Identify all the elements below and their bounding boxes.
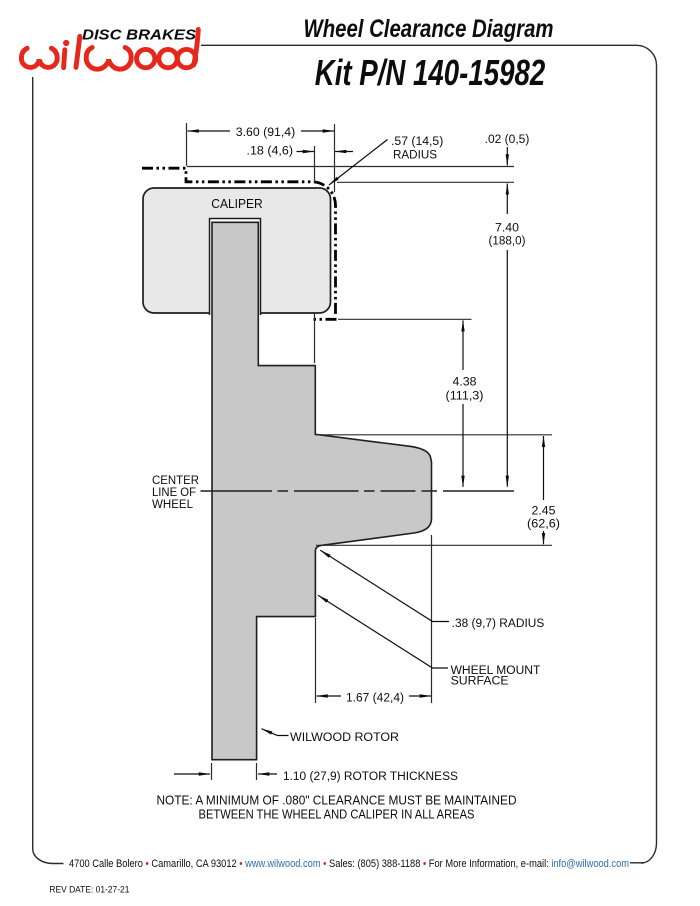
- svg-text:(62,6): (62,6): [527, 519, 560, 531]
- svg-text:.02 (0,5): .02 (0,5): [485, 134, 530, 146]
- svg-text:4700 Calle Bolero • Camarillo,: 4700 Calle Bolero • Camarillo, CA 93012 …: [69, 858, 629, 870]
- svg-text:WILWOOD ROTOR: WILWOOD ROTOR: [290, 732, 399, 744]
- svg-text:(111,3): (111,3): [446, 391, 484, 403]
- svg-text:2.45: 2.45: [532, 506, 556, 518]
- svg-text:LINE OF: LINE OF: [152, 487, 196, 499]
- svg-text:1.67 (42,4): 1.67 (42,4): [346, 693, 404, 705]
- svg-text:7.40: 7.40: [495, 222, 519, 234]
- svg-text:(188,0): (188,0): [489, 236, 526, 248]
- svg-text:NOTE: A MINIMUM OF .080" CLEAR: NOTE: A MINIMUM OF .080" CLEARANCE MUST …: [157, 794, 517, 808]
- svg-text:REV DATE: 01-27-21: REV DATE: 01-27-21: [49, 885, 129, 896]
- svg-text:WHEEL: WHEEL: [152, 499, 194, 511]
- svg-text:Kit P/N 140-15982: Kit P/N 140-15982: [315, 52, 546, 93]
- svg-text:RADIUS: RADIUS: [393, 150, 437, 162]
- svg-text:Wheel Clearance Diagram: Wheel Clearance Diagram: [304, 15, 554, 43]
- svg-text:BETWEEN THE WHEEL AND CALIPER: BETWEEN THE WHEEL AND CALIPER IN ALL ARE…: [199, 808, 475, 822]
- svg-text:.38 (9,7) RADIUS: .38 (9,7) RADIUS: [452, 618, 545, 630]
- svg-text:.18 (4,6): .18 (4,6): [247, 145, 294, 157]
- svg-text:CENTER: CENTER: [152, 475, 199, 487]
- svg-text:1.10 (27,9) ROTOR THICKNESS: 1.10 (27,9) ROTOR THICKNESS: [283, 771, 458, 783]
- svg-text:.57 (14,5): .57 (14,5): [391, 136, 443, 148]
- svg-text:3.60 (91,4): 3.60 (91,4): [236, 127, 296, 139]
- svg-text:SURFACE: SURFACE: [451, 676, 509, 688]
- svg-text:4.38: 4.38: [453, 377, 477, 389]
- svg-text:DISC BRAKES: DISC BRAKES: [82, 27, 196, 44]
- svg-text:CALIPER: CALIPER: [211, 196, 263, 211]
